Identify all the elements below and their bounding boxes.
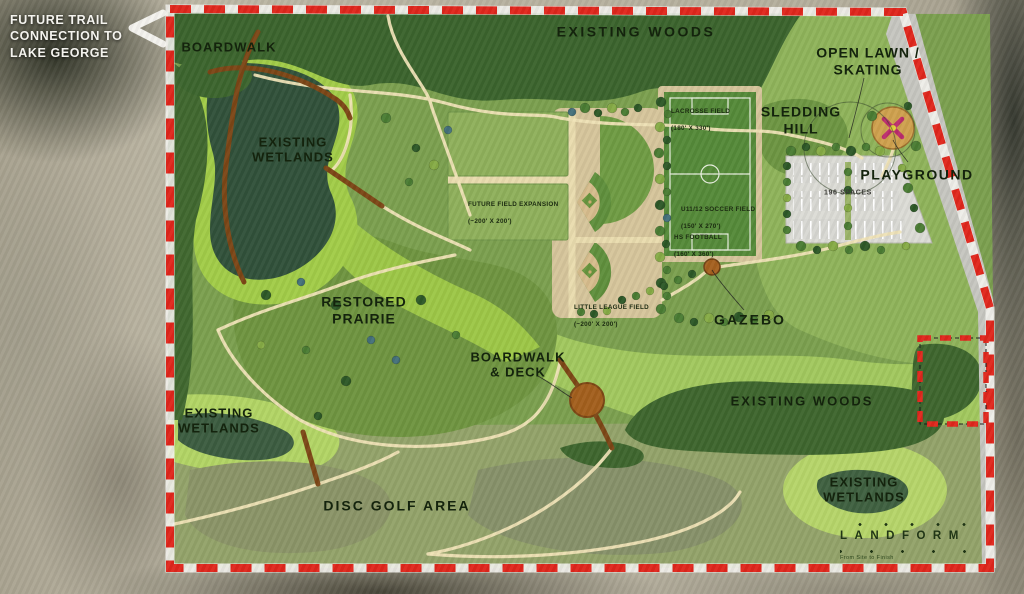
label-gazebo: GAZEBO [714, 312, 786, 329]
site-plan-canvas: FUTURE TRAIL CONNECTION TO LAKE GEORGE B… [0, 0, 1024, 594]
logo-tagline: From Site to Finish [840, 555, 990, 561]
logo-dots-bottom [840, 544, 980, 554]
label-existing-wetlands-southwest: EXISTING WETLANDS [178, 406, 260, 437]
logo-wordmark: LANDFORM [840, 530, 990, 542]
label-little-league-field: LITTLE LEAGUE FIELD (~200' X 200') [574, 295, 649, 329]
label-hs-football: HS FOOTBALL (160' X 360') [674, 225, 722, 259]
label-future-field-expansion: FUTURE FIELD EXPANSION (~200' X 200') [468, 192, 558, 226]
expansion-field-north [448, 112, 568, 176]
label-boardwalk: BOARDWALK [182, 39, 277, 54]
label-lacrosse-field: LACROSSE FIELD (180' X 330') [671, 99, 730, 133]
label-existing-woods-east: EXISTING WOODS [731, 393, 874, 408]
label-parking-spaces: 196 SPACES [824, 190, 872, 197]
logo-dots-top [840, 518, 980, 528]
label-boardwalk-deck: BOARDWALK & DECK [471, 350, 566, 381]
expansion-name: FUTURE FIELD EXPANSION [468, 201, 558, 208]
label-restored-prairie: RESTORED PRAIRIE [321, 293, 407, 326]
label-existing-wetlands-northwest: EXISTING WETLANDS [252, 135, 334, 166]
landform-logo: LANDFORM From Site to Finish [840, 518, 990, 561]
future-trail-note: FUTURE TRAIL CONNECTION TO LAKE GEORGE [10, 12, 142, 61]
lacrosse-name: LACROSSE FIELD [671, 108, 730, 115]
label-existing-wetlands-southeast: EXISTING WETLANDS [823, 475, 905, 506]
label-sledding-hill: SLEDDING HILL [761, 103, 841, 136]
soccer-name: U11/12 SOCCER FIELD [681, 206, 755, 213]
football-name: HS FOOTBALL [674, 234, 722, 241]
label-disc-golf-area: DISC GOLF AREA [323, 498, 470, 515]
label-playground: PLAYGROUND [860, 167, 973, 184]
deck-overlook [570, 383, 604, 417]
label-open-lawn-skating: OPEN LAWN / SKATING [816, 44, 920, 77]
expansion-dims: (~200' X 200') [468, 218, 512, 225]
label-existing-woods-north: EXISTING WOODS [557, 24, 716, 41]
little-league-dims: (~200' X 200') [574, 321, 618, 328]
lacrosse-dims: (180' X 330') [671, 125, 711, 132]
gazebo-structure [704, 259, 720, 275]
playground-equipment [872, 107, 914, 149]
football-dims: (160' X 360') [674, 251, 714, 258]
little-league-name: LITTLE LEAGUE FIELD [574, 304, 649, 311]
